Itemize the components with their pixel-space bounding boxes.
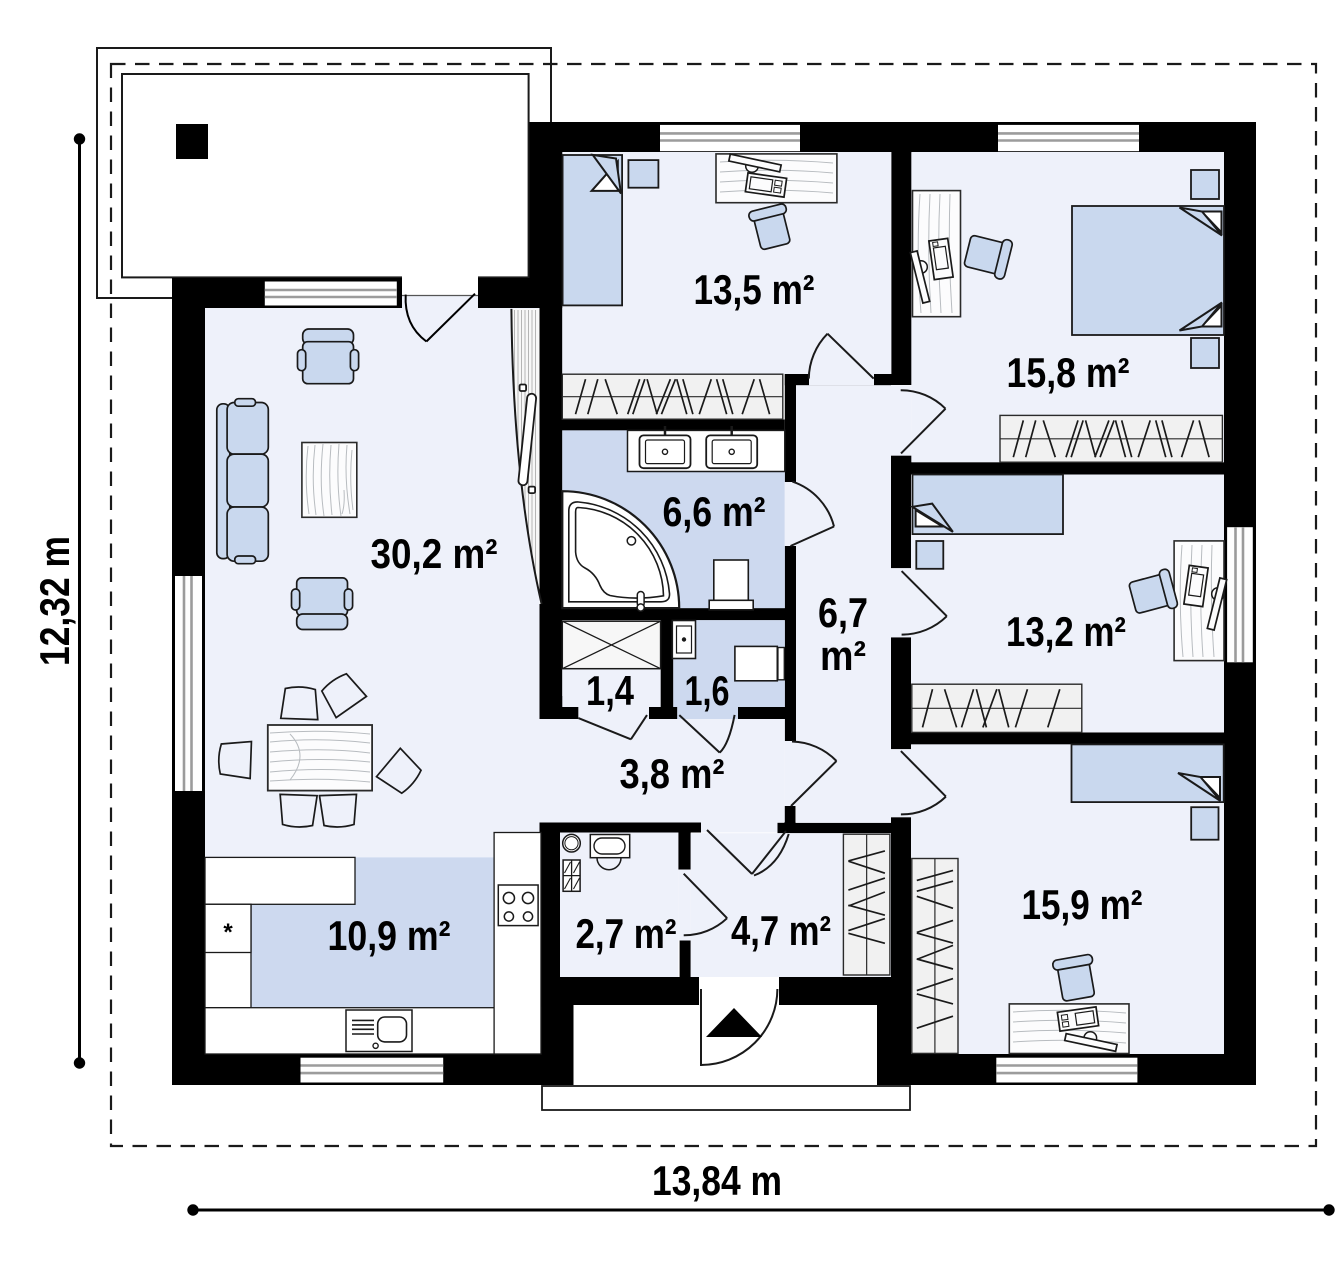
svg-text:13,84 m: 13,84 m xyxy=(652,1157,782,1204)
svg-text:13,2 m²: 13,2 m² xyxy=(1006,608,1126,655)
svg-text:4,7 m²: 4,7 m² xyxy=(731,907,831,954)
svg-text:30,2 m²: 30,2 m² xyxy=(371,530,498,577)
svg-text:1,6: 1,6 xyxy=(685,667,730,714)
svg-text:*: * xyxy=(223,919,233,946)
svg-text:m²: m² xyxy=(820,632,866,679)
svg-text:1,4: 1,4 xyxy=(586,667,635,714)
svg-text:6,7: 6,7 xyxy=(818,589,868,636)
svg-text:13,5 m²: 13,5 m² xyxy=(694,266,815,313)
svg-text:6,6 m²: 6,6 m² xyxy=(663,488,766,535)
svg-text:2,7 m²: 2,7 m² xyxy=(576,910,677,957)
svg-text:15,9 m²: 15,9 m² xyxy=(1022,881,1143,928)
svg-text:15,8 m²: 15,8 m² xyxy=(1007,349,1130,396)
svg-text:12,32 m: 12,32 m xyxy=(31,536,78,666)
svg-text:3,8 m²: 3,8 m² xyxy=(620,750,725,797)
svg-text:10,9 m²: 10,9 m² xyxy=(328,912,451,959)
